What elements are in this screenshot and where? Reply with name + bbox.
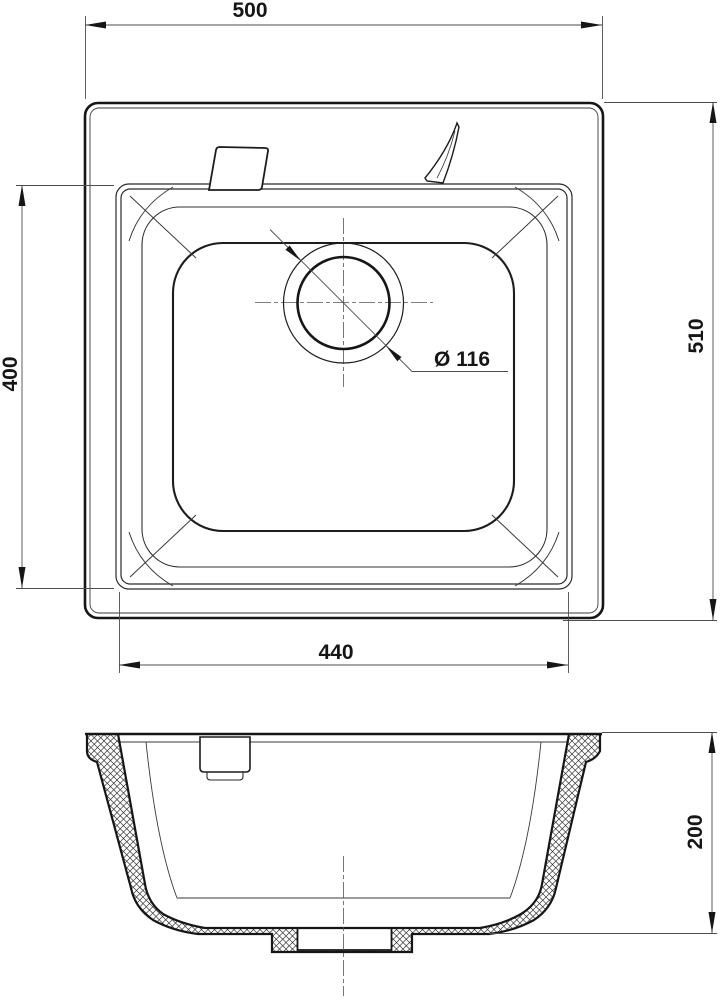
arrow-top: [19, 185, 26, 206]
arrow-left: [85, 22, 106, 29]
dimension-overall-width: 500: [85, 0, 603, 99]
section-view: [85, 734, 602, 996]
tap-knockout-elevation: [200, 737, 250, 772]
arrow-top: [709, 732, 716, 753]
drain-recess-void: [298, 926, 392, 950]
arrow-top: [710, 102, 717, 123]
sink-technical-drawing: Ø 116 500 510 400 440: [0, 0, 720, 1000]
tap-hole-knockout: [209, 147, 268, 190]
arrow-right: [547, 662, 568, 669]
overall-depth-label: 510: [685, 318, 708, 353]
dimension-bowl-height: 200: [489, 732, 717, 934]
arrow-bottom: [709, 912, 716, 933]
bowl-height-label: 200: [684, 814, 707, 849]
tap-knockout-lip: [207, 772, 243, 780]
arrow-bottom: [710, 599, 717, 620]
drawing-sheet: Ø 116 500 510 400 440: [0, 0, 720, 1000]
arrow-right: [581, 22, 602, 29]
bowl-length-label: 400: [0, 356, 22, 391]
arrow-left: [119, 662, 140, 669]
section-far-edges: [118, 742, 569, 898]
overall-width-label: 500: [232, 0, 267, 22]
arrow-bottom: [19, 567, 26, 588]
sink-outer-edge: [85, 103, 603, 618]
bowl-width-label: 440: [318, 641, 353, 664]
section-inner-profile: [118, 734, 569, 928]
top-view: Ø 116: [85, 103, 603, 618]
drain-diameter-label: Ø 116: [434, 348, 490, 371]
